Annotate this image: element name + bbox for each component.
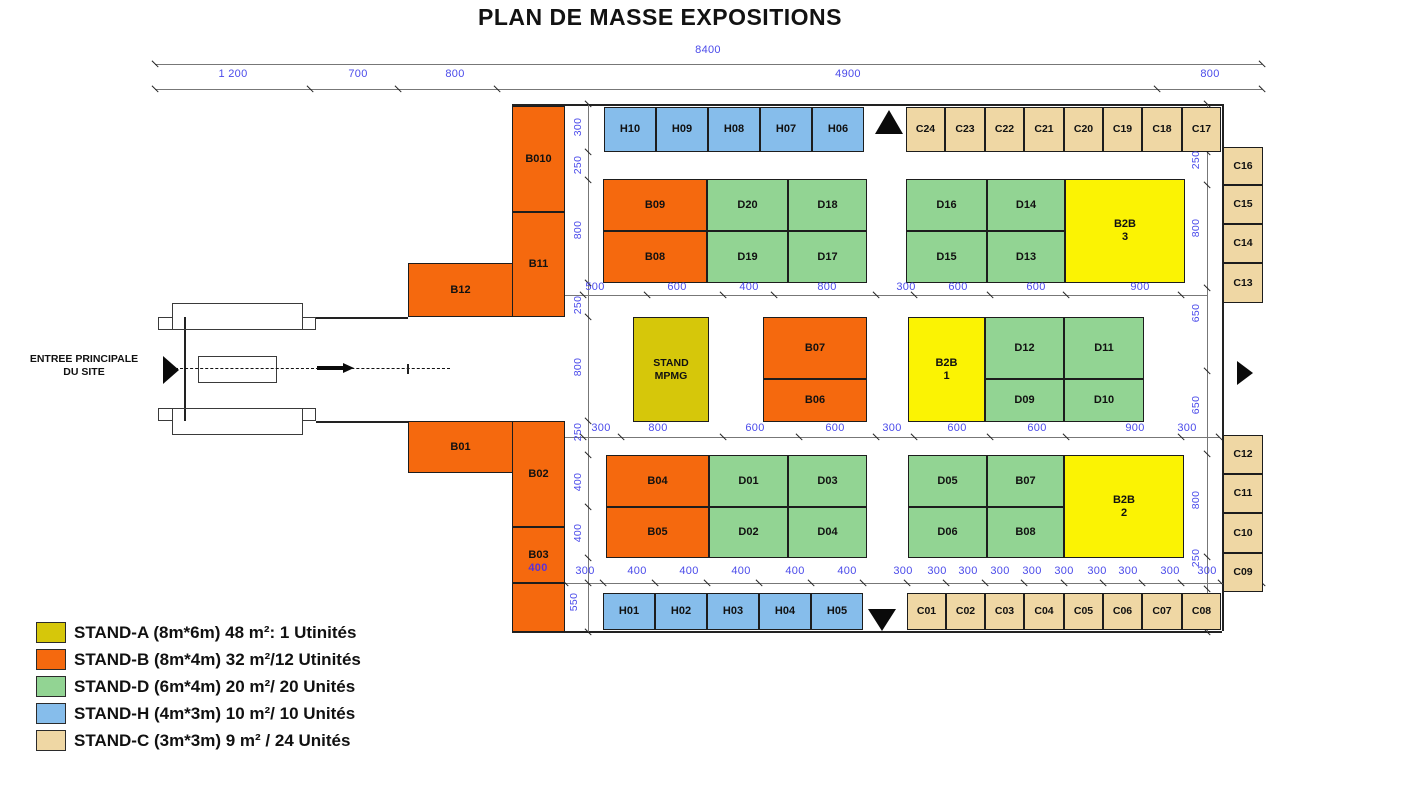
stand-label: C06 <box>1113 605 1132 617</box>
stand-label: C09 <box>1233 566 1252 578</box>
stand-c07: C07 <box>1142 593 1182 630</box>
road-arrow-icon <box>343 363 354 373</box>
stand-d14: D14 <box>987 179 1065 231</box>
east-exit-arrow-icon <box>1237 361 1253 385</box>
stand-b09: B09 <box>603 179 707 231</box>
stand-label: H02 <box>671 605 691 618</box>
legend-swatch-a <box>36 622 66 643</box>
dim-label: 300 <box>893 565 912 577</box>
stand-label: C01 <box>917 605 936 617</box>
stand-b06: B06 <box>763 379 867 422</box>
stand-d06: D06 <box>908 507 987 558</box>
stand-h03: H03 <box>707 593 759 630</box>
entrance-label-line1: ENTREE PRINCIPALE <box>28 353 140 366</box>
stand-d18: D18 <box>788 179 867 231</box>
gate-structure <box>302 317 316 330</box>
dim-label: 800 <box>1200 68 1219 80</box>
dim-label: 400 <box>731 565 750 577</box>
stand-label: D18 <box>817 199 837 212</box>
wall-line <box>512 631 1222 633</box>
stand-b02: B02 <box>512 421 565 527</box>
dimension-line <box>155 89 1262 90</box>
dim-label-vertical: 800 <box>572 358 584 376</box>
stand-d11: D11 <box>1064 317 1144 379</box>
dimension-line <box>565 295 1207 296</box>
stand-label: C18 <box>1152 123 1171 135</box>
stand-label: C15 <box>1233 198 1252 210</box>
dim-label: 600 <box>825 422 844 434</box>
dim-label: 8400 <box>695 44 721 56</box>
stand-label: D16 <box>936 199 956 212</box>
stand-label: C22 <box>995 123 1014 135</box>
stand-c19: C19 <box>1103 107 1142 152</box>
stand-label: D01 <box>738 475 758 488</box>
legend-row: STAND-B (8m*4m) 32 m²/12 Utinités <box>36 646 361 673</box>
stand-c15: C15 <box>1223 185 1263 224</box>
stand-label: D13 <box>1016 251 1036 264</box>
dim-label: 500 <box>585 281 604 293</box>
legend-label: STAND-H (4m*3m) 10 m²/ 10 Unités <box>74 704 355 724</box>
dim-label: 300 <box>896 281 915 293</box>
dimension-line <box>1207 104 1208 632</box>
stand-label: C03 <box>995 605 1014 617</box>
dim-label: 400 <box>785 565 804 577</box>
stand-c24: C24 <box>906 107 945 152</box>
dimension-line <box>565 437 1219 438</box>
stand-h09: H09 <box>656 107 708 152</box>
stand-label: D15 <box>936 251 956 264</box>
stand-label: C17 <box>1192 123 1211 135</box>
stand-label: H08 <box>724 123 744 136</box>
dim-label: 4900 <box>835 68 861 80</box>
stand-label: D04 <box>817 526 837 539</box>
dim-label: 900 <box>1125 422 1144 434</box>
wall-line <box>316 421 408 423</box>
dim-label-vertical: 650 <box>1190 396 1202 414</box>
wall-line <box>316 317 408 319</box>
stand-d17: D17 <box>788 231 867 283</box>
stand-label: C20 <box>1074 123 1093 135</box>
gate-structure <box>158 408 173 421</box>
floor-plan: PLAN DE MASSE EXPOSITIONS ENTREE PRINCIP… <box>0 0 1408 793</box>
dim-label: 300 <box>958 565 977 577</box>
dim-label: 400 <box>528 562 547 574</box>
stand-d02: D02 <box>709 507 788 558</box>
dim-label: 400 <box>679 565 698 577</box>
dim-label-vertical: 400 <box>572 473 584 491</box>
dim-label-vertical: 250 <box>572 423 584 441</box>
gate-structure <box>158 317 173 330</box>
entrance-label: ENTREE PRINCIPALE DU SITE <box>28 353 140 379</box>
stand-label-line2: MPMG <box>655 370 688 382</box>
legend-label: STAND-B (8m*4m) 32 m²/12 Utinités <box>74 650 361 670</box>
stand-label: B07 <box>1015 475 1035 488</box>
stand-label: D02 <box>738 526 758 539</box>
page-title: PLAN DE MASSE EXPOSITIONS <box>478 4 842 31</box>
dim-label: 600 <box>667 281 686 293</box>
stand-label: D19 <box>737 251 757 264</box>
road-arrow-shaft <box>317 366 343 370</box>
dimension-line <box>588 104 589 632</box>
dim-label: 400 <box>627 565 646 577</box>
stand-label: B03 <box>528 549 548 562</box>
dim-label-vertical: 800 <box>572 221 584 239</box>
legend-label: STAND-D (6m*4m) 20 m²/ 20 Unités <box>74 677 355 697</box>
stand-label: C04 <box>1034 605 1053 617</box>
stand-c06: C06 <box>1103 593 1142 630</box>
stand-label-line2: 3 <box>1122 231 1128 244</box>
dim-label: 800 <box>817 281 836 293</box>
stand-c03: C03 <box>985 593 1024 630</box>
stand-label: H06 <box>828 123 848 136</box>
stand-label: B08 <box>1015 526 1035 539</box>
dim-label: 600 <box>948 281 967 293</box>
legend-row: STAND-A (8m*6m) 48 m²: 1 Utinités <box>36 619 361 646</box>
stand-h01: H01 <box>603 593 655 630</box>
north-aisle-arrow-icon <box>875 110 903 134</box>
stand-label: C13 <box>1233 277 1252 289</box>
dim-label: 800 <box>445 68 464 80</box>
stand-d12: D12 <box>985 317 1064 379</box>
stand-label: H05 <box>827 605 847 618</box>
dim-label: 800 <box>648 422 667 434</box>
dimension-line <box>512 583 1262 584</box>
stand-h06: H06 <box>812 107 864 152</box>
road-centerline <box>175 368 450 369</box>
stand-label: H10 <box>620 123 640 136</box>
stand-label: D11 <box>1094 342 1114 355</box>
stand-label: H01 <box>619 605 639 618</box>
dim-label: 600 <box>1026 281 1045 293</box>
stand-label: B2B <box>1113 494 1135 507</box>
stand-c23: C23 <box>945 107 985 152</box>
stand-label: B11 <box>529 258 549 271</box>
stand-d19: D19 <box>707 231 788 283</box>
stand-label: B2B <box>1114 218 1136 231</box>
stand-label: C11 <box>1234 487 1253 499</box>
stand-h05: H05 <box>811 593 863 630</box>
stand-label: B09 <box>645 199 665 212</box>
stand-mpmg: STANDMPMG <box>633 317 709 422</box>
stand-label: B07 <box>805 342 825 355</box>
stand-label: B12 <box>450 284 470 297</box>
stand-label: C12 <box>1233 448 1252 460</box>
stand-d05: D05 <box>908 455 987 507</box>
dim-label: 400 <box>837 565 856 577</box>
stand-c22: C22 <box>985 107 1024 152</box>
stand-b12: B12 <box>408 263 513 317</box>
legend-swatch-b <box>36 649 66 670</box>
dim-label: 300 <box>1177 422 1196 434</box>
legend-row: STAND-D (6m*4m) 20 m²/ 20 Unités <box>36 673 361 700</box>
stand-d20: D20 <box>707 179 788 231</box>
wall-line <box>512 104 1222 106</box>
stand-c05: C05 <box>1064 593 1103 630</box>
dim-label: 300 <box>1160 565 1179 577</box>
stand-label: C07 <box>1152 605 1171 617</box>
dim-label: 300 <box>882 422 901 434</box>
stand-label: C10 <box>1233 527 1252 539</box>
stand-b08: B08 <box>603 231 707 283</box>
stand-label: C08 <box>1192 605 1211 617</box>
legend-row: STAND-H (4m*3m) 10 m²/ 10 Unités <box>36 700 361 727</box>
dim-label: 300 <box>1118 565 1137 577</box>
legend-swatch-h <box>36 703 66 724</box>
stand-b05: B05 <box>606 507 709 558</box>
stand-d03: D03 <box>788 455 867 507</box>
entrance-label-line2: DU SITE <box>28 366 140 379</box>
stand-label: D09 <box>1014 394 1034 407</box>
dim-label: 300 <box>927 565 946 577</box>
gate-structure <box>172 303 303 330</box>
stand-label: B04 <box>647 475 667 488</box>
stand-label: D03 <box>817 475 837 488</box>
stand-label: C14 <box>1233 237 1252 249</box>
stand-b010: B010 <box>512 106 565 212</box>
stand-label: B06 <box>805 394 825 407</box>
legend-row: STAND-C (3m*3m) 9 m² / 24 Unités <box>36 727 361 754</box>
stand-label: STAND <box>653 357 688 369</box>
stand-d16: D16 <box>906 179 987 231</box>
stand-h04: H04 <box>759 593 811 630</box>
gate-structure <box>302 408 316 421</box>
stand-label: B2B <box>935 357 957 370</box>
stand-b2b-3: B2B3 <box>1065 179 1185 283</box>
dimension-line <box>155 64 1262 65</box>
dim-label: 300 <box>1087 565 1106 577</box>
stand-d04: D04 <box>788 507 867 558</box>
stand-label: C19 <box>1113 123 1132 135</box>
stand-c16: C16 <box>1223 147 1263 185</box>
stand-c10: C10 <box>1223 513 1263 553</box>
stand-c08: C08 <box>1182 593 1221 630</box>
stand-label: B08 <box>645 251 665 264</box>
dim-label: 300 <box>1022 565 1041 577</box>
stand-label: D10 <box>1094 394 1114 407</box>
legend-swatch-d <box>36 676 66 697</box>
dim-label: 300 <box>591 422 610 434</box>
stand-label-line2: 1 <box>943 370 949 383</box>
dim-label: 300 <box>990 565 1009 577</box>
stand-label: C16 <box>1233 160 1252 172</box>
dim-label-vertical: 800 <box>1190 219 1202 237</box>
stand-c11: C11 <box>1223 474 1263 513</box>
stand-label: D06 <box>937 526 957 539</box>
stand-label: C05 <box>1074 605 1093 617</box>
dim-label: 600 <box>1027 422 1046 434</box>
dim-label: 300 <box>575 565 594 577</box>
legend-label: STAND-C (3m*3m) 9 m² / 24 Unités <box>74 731 350 751</box>
stand-c09: C09 <box>1223 553 1263 592</box>
stand-c21: C21 <box>1024 107 1064 152</box>
dim-label-vertical: 800 <box>1190 491 1202 509</box>
stand-d15: D15 <box>906 231 987 283</box>
legend-swatch-c <box>36 730 66 751</box>
stand-label: H03 <box>723 605 743 618</box>
stand-h08: H08 <box>708 107 760 152</box>
dim-label: 600 <box>947 422 966 434</box>
stand-label: H04 <box>775 605 795 618</box>
stand-c14: C14 <box>1223 224 1263 263</box>
stand-b11: B11 <box>512 212 565 317</box>
dim-label: 900 <box>1130 281 1149 293</box>
stand-label: B05 <box>647 526 667 539</box>
stand-c02: C02 <box>946 593 985 630</box>
south-aisle-arrow-icon <box>868 609 896 631</box>
stand-c20: C20 <box>1064 107 1103 152</box>
stand-label-line2: 2 <box>1121 507 1127 520</box>
stand-h02: H02 <box>655 593 707 630</box>
legend-label: STAND-A (8m*6m) 48 m²: 1 Utinités <box>74 623 356 643</box>
stand-label: B02 <box>528 468 548 481</box>
dim-label-vertical: 250 <box>572 156 584 174</box>
dim-label: 600 <box>745 422 764 434</box>
stand-b04: B04 <box>606 455 709 507</box>
dim-label: 400 <box>739 281 758 293</box>
stand-c13: C13 <box>1223 263 1263 303</box>
dim-label: 700 <box>348 68 367 80</box>
stand-c01: C01 <box>907 593 946 630</box>
stand-h07: H07 <box>760 107 812 152</box>
dim-label-vertical: 650 <box>1190 304 1202 322</box>
dim-label-vertical: 300 <box>572 118 584 136</box>
stand-c17: C17 <box>1182 107 1221 152</box>
legend: STAND-A (8m*6m) 48 m²: 1 UtinitésSTAND-B… <box>36 619 361 754</box>
stand-b07: B07 <box>763 317 867 379</box>
stand-c12: C12 <box>1223 435 1263 474</box>
stand-label: D05 <box>937 475 957 488</box>
stand-d10: D10 <box>1064 379 1144 422</box>
dim-label: 300 <box>1054 565 1073 577</box>
stand-label: C23 <box>955 123 974 135</box>
stand-label: C24 <box>916 123 935 135</box>
stand-label: D20 <box>737 199 757 212</box>
stand-label: D14 <box>1016 199 1036 212</box>
stand-d01: D01 <box>709 455 788 507</box>
stand-label: C21 <box>1034 123 1053 135</box>
stand-b-annex <box>512 583 565 632</box>
stand-b08-d: B08 <box>987 507 1064 558</box>
stand-h10: H10 <box>604 107 656 152</box>
entrance-arrow-icon <box>163 356 179 384</box>
stand-d13: D13 <box>987 231 1065 283</box>
dim-label-vertical: 250 <box>1190 549 1202 567</box>
dim-label-vertical: 250 <box>572 296 584 314</box>
stand-label: B01 <box>450 441 470 454</box>
dim-label-vertical: 550 <box>568 593 580 611</box>
gate-structure <box>198 356 277 383</box>
stand-label: D17 <box>817 251 837 264</box>
stand-d09: D09 <box>985 379 1064 422</box>
dim-label-vertical: 400 <box>572 524 584 542</box>
stand-b2b-1: B2B1 <box>908 317 985 422</box>
stand-c04: C04 <box>1024 593 1064 630</box>
road-centerline-tick <box>407 364 409 374</box>
stand-label: H09 <box>672 123 692 136</box>
stand-label: B010 <box>525 153 551 166</box>
wall-line <box>184 317 186 421</box>
stand-b01: B01 <box>408 421 513 473</box>
gate-structure <box>172 408 303 435</box>
stand-label: D12 <box>1014 342 1034 355</box>
stand-c18: C18 <box>1142 107 1182 152</box>
stand-label: C02 <box>956 605 975 617</box>
stand-b07-d: B07 <box>987 455 1064 507</box>
dim-label: 1 200 <box>218 68 247 80</box>
stand-label: H07 <box>776 123 796 136</box>
stand-b03: B03 <box>512 527 565 583</box>
dim-label-vertical: 250 <box>1190 151 1202 169</box>
stand-b2b-2: B2B2 <box>1064 455 1184 558</box>
